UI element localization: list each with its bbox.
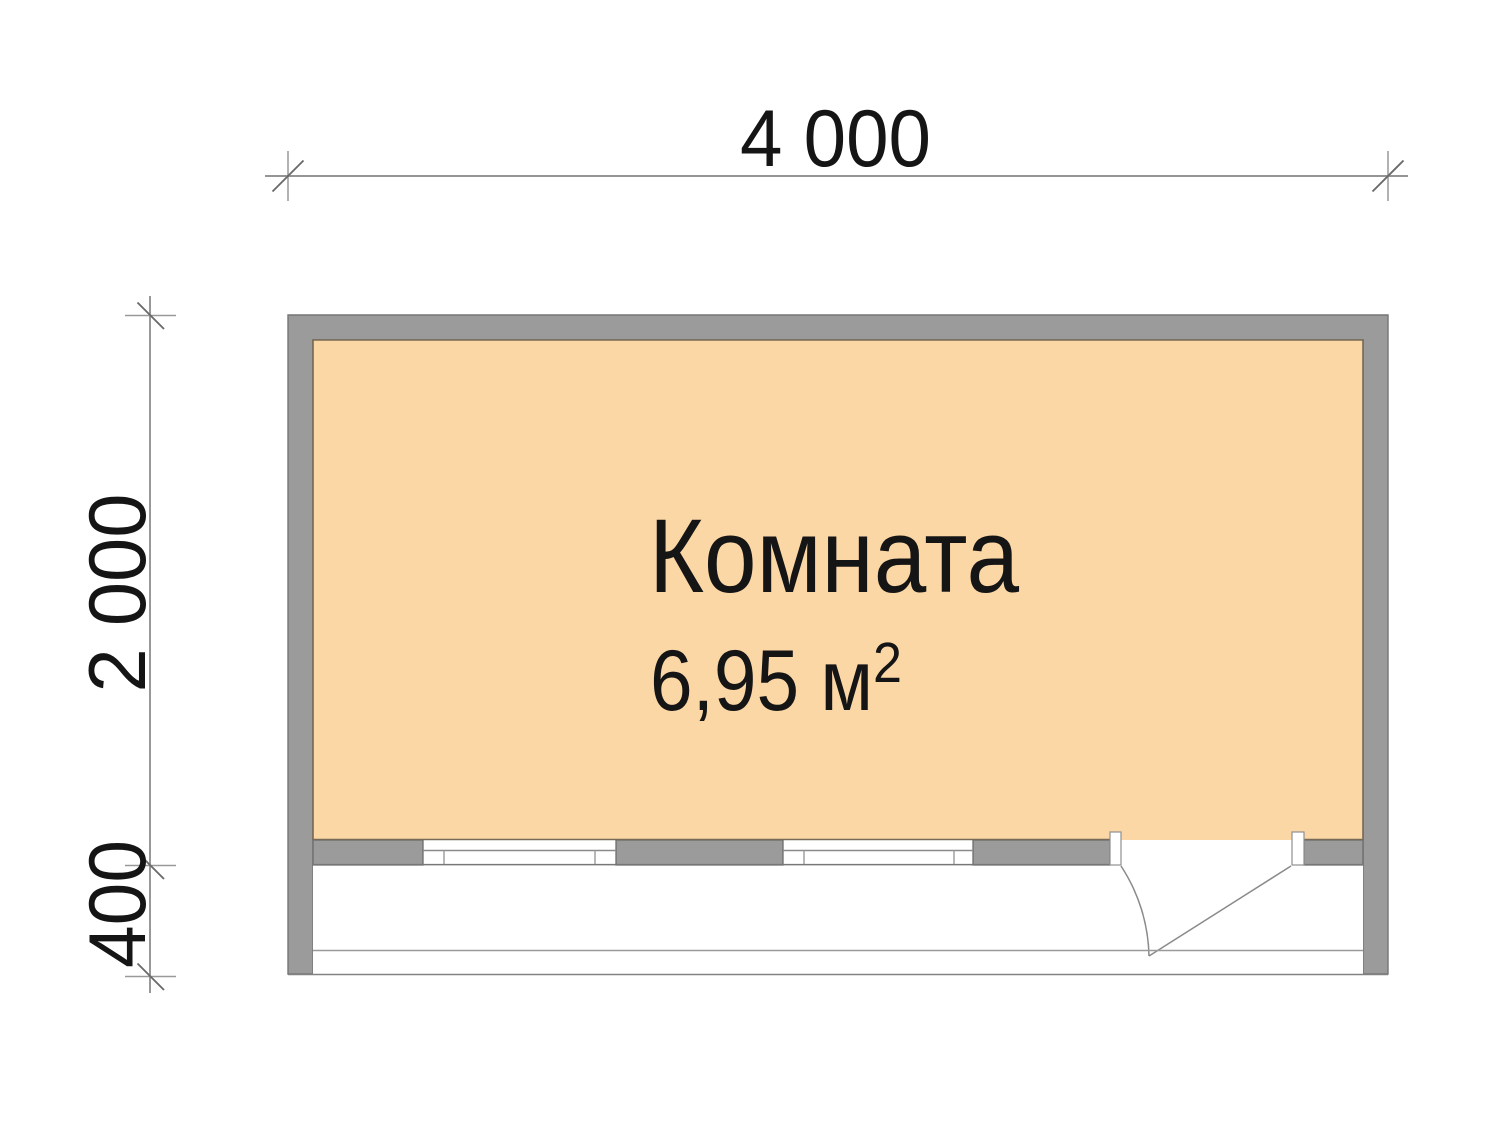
svg-text:2: 2 — [873, 631, 902, 695]
svg-text:4 000: 4 000 — [740, 94, 931, 184]
svg-text:400: 400 — [73, 840, 163, 968]
svg-text:Комната: Комната — [649, 498, 1020, 615]
svg-text:6,95 м: 6,95 м — [650, 633, 873, 729]
svg-text:2 000: 2 000 — [73, 494, 163, 693]
